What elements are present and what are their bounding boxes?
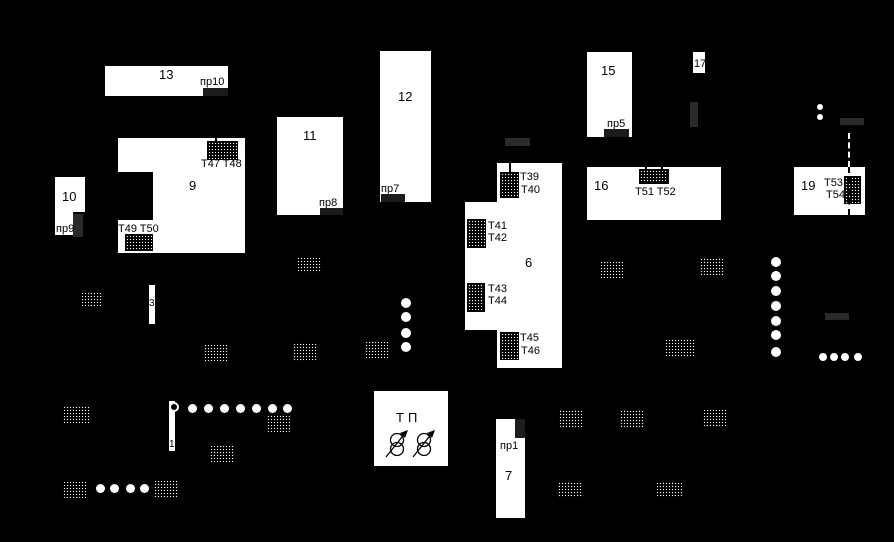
dither-block [210, 445, 235, 463]
building-6-number: 6 [525, 256, 532, 269]
fence-dot [96, 484, 105, 493]
transformer-symbol-2-arrowhead [427, 430, 435, 438]
building-9-number: 9 [189, 179, 196, 192]
building-17-bar [690, 102, 698, 127]
gate-pr7-bar[interactable] [381, 194, 405, 202]
fence-dot [252, 404, 261, 413]
gate-pr8-bar[interactable] [320, 208, 343, 215]
fence-dot [771, 286, 781, 296]
fence-dot [771, 316, 781, 326]
transformer-block-t49-t50[interactable] [126, 235, 152, 250]
dither-block [558, 482, 583, 498]
fence-dot [236, 404, 245, 413]
building-13-number: 13 [159, 68, 173, 81]
fence-dot [819, 353, 827, 361]
dither-block [620, 410, 645, 428]
dither-block [204, 344, 228, 361]
fence-dot [401, 312, 411, 322]
transformer-block-t51-t52[interactable] [640, 170, 668, 183]
fence-node-ring [169, 402, 179, 412]
gate-pr1-label: пр1 [500, 441, 518, 452]
fence-dot [771, 257, 781, 267]
fence-dot [830, 353, 838, 361]
transformer-t40-label: T40 [521, 185, 540, 196]
transformer-t51-t52-label: T51 T52 [635, 187, 676, 198]
dither-block [293, 343, 318, 361]
dither-block [81, 292, 103, 307]
transformer-t45-label: T45 [520, 333, 539, 344]
gate-pr9-label: пр9 [56, 224, 74, 235]
transformer-t43-label: T43 [488, 284, 507, 295]
dither-block [267, 415, 290, 432]
fence-dot [817, 104, 823, 110]
transformer-block-t45-t46[interactable] [501, 333, 518, 359]
dither-block [703, 409, 728, 427]
fence-dot [841, 353, 849, 361]
feeder-dashed-line-upper [848, 133, 850, 167]
dark-bar [825, 313, 849, 320]
building-10-number: 10 [62, 190, 76, 203]
transformer-symbols [374, 391, 448, 466]
fence-dot [140, 484, 149, 493]
transformer-symbol-1-arrowhead [400, 430, 408, 438]
gate-pr9-bar[interactable] [73, 214, 83, 237]
building-11-number: 11 [303, 129, 317, 142]
transformer-t46-label: T46 [521, 346, 540, 357]
transformer-block-t47-t48[interactable] [208, 142, 237, 159]
fence-dot [854, 353, 862, 361]
fence-dot [204, 404, 213, 413]
dither-block [154, 480, 179, 498]
dark-bar [505, 138, 530, 146]
transformer-t39-t40-tick [509, 163, 511, 173]
feeder-dashed-line-through-19 [848, 167, 850, 215]
building-16-number: 16 [594, 179, 608, 192]
site-plan-canvas: 13 пр10 10 пр9 9 T47 T48 T49 T50 11 пр8 … [0, 0, 894, 542]
fence-line-3-label: 3 [149, 299, 155, 309]
building-12 [380, 51, 431, 202]
building-12-number: 12 [398, 90, 412, 103]
transformer-t41-label: T41 [488, 221, 507, 232]
dither-block [63, 481, 88, 498]
transformer-t44-label: T44 [488, 296, 507, 307]
transformer-t39-label: T39 [520, 172, 539, 183]
dither-block [63, 406, 90, 424]
dither-block [600, 261, 625, 279]
fence-dot [771, 330, 781, 340]
dither-block [297, 257, 322, 273]
transformer-t54-label: T54 [826, 190, 845, 201]
fence-dot [401, 342, 411, 352]
fence-dot [817, 114, 823, 120]
dark-bar [840, 118, 864, 125]
gate-pr10-bar[interactable] [203, 88, 228, 96]
fence-dot [268, 404, 277, 413]
fence-line-1-label: 1 [169, 440, 175, 450]
transformer-block-t39-t40[interactable] [501, 173, 518, 197]
fence-dot [401, 298, 411, 308]
dither-block [700, 258, 725, 275]
dither-block [656, 482, 683, 498]
fence-dot [401, 328, 411, 338]
fence-dot [220, 404, 229, 413]
fence-dot [283, 404, 292, 413]
transformer-t42-label: T42 [488, 233, 507, 244]
building-15-number: 15 [601, 64, 615, 77]
transformer-t47-t48-label: T47 T48 [201, 159, 242, 170]
transformer-t53-label: T53 [824, 178, 843, 189]
dither-block [665, 339, 696, 357]
fence-dot [126, 484, 135, 493]
fence-dot [188, 404, 197, 413]
fence-dot [110, 484, 119, 493]
fence-dot [771, 347, 781, 357]
transformer-t49-t50-label: T49 T50 [118, 224, 159, 235]
dither-block [559, 410, 584, 428]
building-17-number: 17 [694, 59, 706, 70]
dither-block [365, 341, 390, 359]
transformer-block-t41-t42[interactable] [468, 220, 485, 247]
gate-pr10-label: пр10 [200, 77, 224, 88]
building-7-number: 7 [505, 469, 512, 482]
gate-pr1-bar[interactable] [515, 419, 525, 438]
fence-dot [771, 301, 781, 311]
building-19-number: 19 [801, 179, 815, 192]
building-9-part-right [153, 172, 245, 220]
gate-pr5-bar[interactable] [604, 129, 629, 137]
transformer-block-t43-t44[interactable] [468, 284, 484, 311]
fence-dot [771, 271, 781, 281]
